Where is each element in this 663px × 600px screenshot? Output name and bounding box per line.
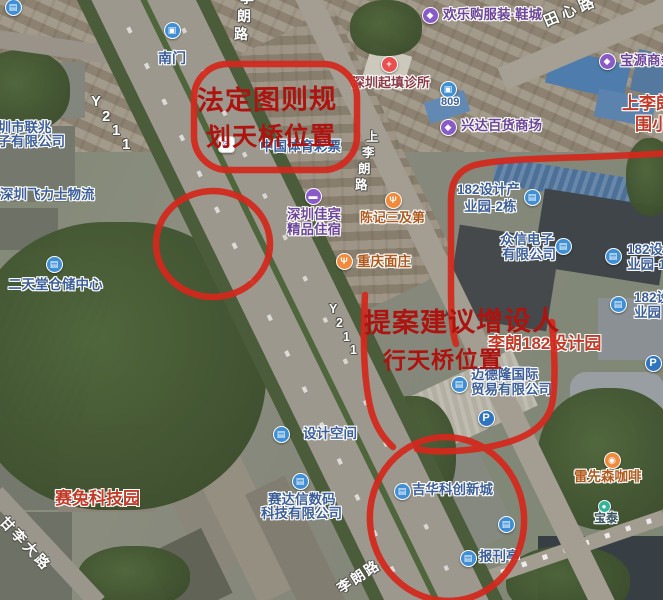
poi-label: 深圳飞力士物流 [0, 188, 95, 203]
poi-label: 贸易有限公司 [471, 383, 552, 398]
food-icon: ◉ [604, 452, 621, 469]
poi-label: 迈德隆国际 [471, 368, 539, 383]
poi-label: 雷先森咖啡 [574, 470, 642, 485]
poi-label: 宝源商务 [620, 54, 663, 69]
food-icon: Ψ [385, 192, 402, 209]
road-label-y211_b: 1 [343, 330, 350, 344]
company-icon: ▤ [610, 296, 627, 313]
medical-icon: + [381, 56, 398, 73]
poi-label: 深圳起填诊所 [352, 76, 430, 90]
road-label-y211_b: 2 [336, 316, 343, 330]
poi-label: 陈记三及第 [360, 211, 425, 225]
company-icon: ▤ [498, 516, 515, 533]
parking-icon: P [645, 355, 662, 372]
area-label: 赛兔科技园 [55, 490, 140, 509]
road-label-y211_a: Y [91, 93, 101, 110]
road-label-shanglilang_road: 路 [355, 174, 368, 193]
poi-label: 182设计产 [457, 183, 520, 198]
road-label-y211_a: 1 [122, 136, 130, 153]
poi-label: 182设 [627, 243, 663, 258]
road-label-xinlilang_road: 朗 [237, 6, 251, 26]
road-label-lilang_road_s: 李朗路 [333, 555, 384, 598]
poi-label: 众信电子 [500, 233, 554, 248]
company-icon: ◎ [218, 136, 235, 153]
company-icon: ▤ [451, 376, 468, 393]
poi-label: 中国体育彩票 [260, 140, 341, 155]
road-label-y211_b: 1 [350, 343, 357, 357]
parking-icon: P [478, 410, 495, 427]
poi-label: 兴达百货商场 [461, 119, 542, 134]
kiosk-icon: ▤ [460, 550, 477, 567]
poi-label: 吉华科创新城 [412, 483, 493, 498]
company-icon: ▤ [46, 256, 63, 273]
poi-label: 精品住宿 [287, 223, 341, 238]
food-icon: Ψ [336, 253, 353, 270]
area-label: 李朗182设计园 [488, 335, 601, 354]
company-icon: ▤ [5, 0, 22, 16]
company-icon: ▤ [292, 473, 309, 490]
poi-label: 欢乐购服装·鞋城 [443, 8, 542, 23]
transport-icon: ▣ [164, 22, 181, 39]
hotel-icon: ▬ [305, 188, 322, 205]
poi-label: 业园-2栋 [464, 200, 517, 215]
road-label-y211_a: 1 [112, 122, 120, 139]
poi-label: 宝泰 [594, 512, 618, 525]
transport-icon: ▣ [440, 81, 457, 98]
area-label: 上李朗 [622, 95, 663, 114]
shopping-icon: ◆ [422, 7, 439, 24]
company-icon: ▤ [555, 238, 572, 255]
area-label: 围小 [635, 116, 663, 135]
poi-label: 业园 [634, 306, 661, 321]
road-label-xinlilang_road: 路 [234, 24, 248, 44]
poi-label: 809 [441, 96, 459, 108]
road-label-tianxin: 田心路 [540, 0, 601, 31]
road-label-y211_b: Y [329, 302, 337, 316]
poi-label: 182设 [634, 291, 663, 306]
company-icon: ▤ [524, 189, 541, 206]
company-icon: ▤ [394, 483, 411, 500]
company-icon: ▤ [273, 426, 290, 443]
poi-label: 南门 [158, 51, 186, 66]
poi-label: 深圳佳宾 [287, 208, 341, 223]
map-label-layer: ▣南门◆欢乐购服装·鞋城+深圳起填诊所▣809◆兴达百货商场◆宝源商务◎中国体育… [0, 0, 663, 600]
shopping-icon: ◆ [599, 53, 616, 70]
road-label-ganli_road: 甘李大路 [0, 512, 56, 575]
poi-label: 业园-1 [627, 258, 663, 273]
shopping-icon: ◆ [440, 119, 457, 136]
company-icon: ▤ [605, 248, 622, 265]
poi-label: 有限公司 [502, 248, 556, 263]
road-label-y211_a: 2 [102, 108, 110, 125]
poi-label: 重庆面庄 [357, 255, 411, 270]
poi-label: 科技有限公司 [261, 507, 342, 522]
poi-label: 电子有限公司 [0, 135, 65, 150]
poi-label: 报刊亭 [479, 550, 520, 565]
poi-label: 二天堂仓储中心 [8, 278, 103, 293]
poi-label: 设计空间 [303, 427, 357, 442]
satellite-map[interactable]: ▣南门◆欢乐购服装·鞋城+深圳起填诊所▣809◆兴达百货商场◆宝源商务◎中国体育… [0, 0, 663, 600]
